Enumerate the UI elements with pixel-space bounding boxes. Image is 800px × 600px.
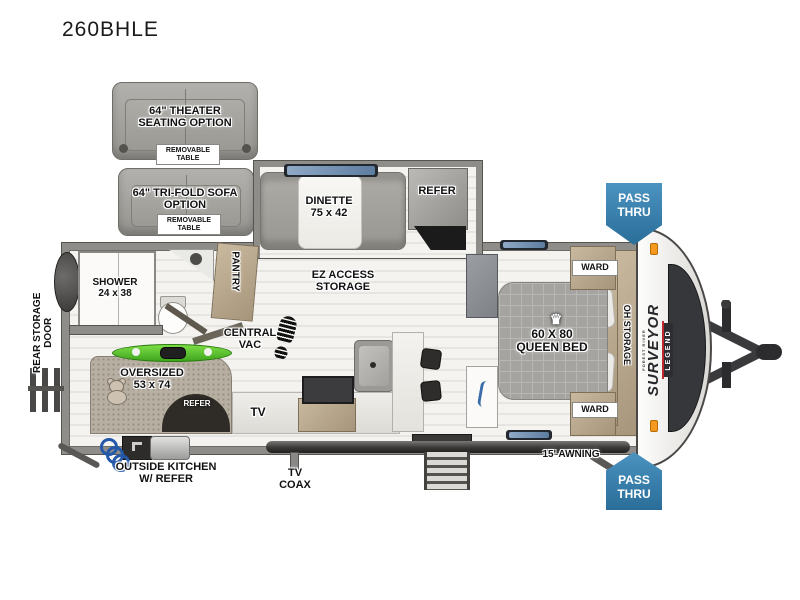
window-glass [287,166,375,175]
brand-name: SURVEYOR [646,304,661,396]
theater-seating-label: 64" THEATER SEATING OPTION [120,106,250,130]
ward-bottom-label: WARD [572,402,618,418]
hitch-icon [700,300,784,404]
pantry-label: PANTRY [229,243,240,299]
refrigerator [408,168,468,230]
crown-icon: ♛ [545,312,567,327]
kitchen-sink [354,340,394,392]
outside-kitchen-label: OUTSIDE KITCHEN W/ REFER [108,462,224,486]
trifold-sofa-label: 64" TRI-FOLD SOFA OPTION [120,188,250,212]
oh-storage-label: OH STORAGE [621,301,631,369]
kayak-hatch [204,348,212,356]
ez-access-storage-label: EZ ACCESS STORAGE [298,270,388,294]
bear-body [107,390,127,405]
bath-faucet-icon [190,253,202,265]
sofa-foot [119,144,128,153]
trifold-removable-table-chip: REMOVABLE TABLE [157,214,221,235]
bedroom-window-bottom [506,430,552,440]
ward-top-label: WARD [572,260,618,276]
central-vac-label: CENTRAL VAC [218,328,282,352]
bathroom-wall [70,326,162,334]
bedroom-window-top [500,240,548,250]
sofa-foot [242,144,251,153]
refer-label: REFER [408,186,466,198]
overhead-cabinet [466,254,498,318]
floorplan-page: 260BHLE 64" THEATER SEATING OPTION REMOV… [0,0,800,600]
stool [420,380,442,402]
oversized-bunk-label: OVERSIZED 53 x 74 [116,368,188,392]
sink-faucet-icon [370,362,376,368]
window-glass [509,432,549,438]
tv-label: TV [240,406,276,419]
outside-faucet-stem [132,442,135,451]
queen-bed-label: 60 X 80 QUEEN BED [512,328,592,354]
kitchen-island [392,332,424,432]
entry-door [466,366,498,428]
outside-kitchen-refer [150,436,190,460]
dinette-label: DINETTE 75 x 42 [284,196,374,220]
awning-length-label: 15' AWNING [536,450,606,461]
stool [420,348,443,371]
kayak-icon [112,344,230,360]
tv-coax-label: TV COAX [272,468,318,492]
marker-light-icon [650,243,658,255]
kayak-hatch [132,348,140,356]
tv-screen [302,376,354,404]
slideout-window [284,164,378,177]
bunk-refer-label: REFER [176,400,218,409]
window-glass [503,242,545,248]
marker-light-icon [650,420,658,432]
brand-series: LEGEND [664,323,673,376]
page-title: 260BHLE [62,18,159,42]
theater-removable-table-chip: REMOVABLE TABLE [156,144,220,165]
entry-door-graphic [477,380,492,408]
kayak-cockpit [160,347,186,359]
entry-steps-ladder [424,452,470,490]
brand-decal: FOREST RIVER SURVEYOR LEGEND [637,290,677,410]
rear-storage-door-label: REAR STORAGE DOOR [33,279,55,387]
shower-label: SHOWER 24 x 38 [74,278,156,300]
